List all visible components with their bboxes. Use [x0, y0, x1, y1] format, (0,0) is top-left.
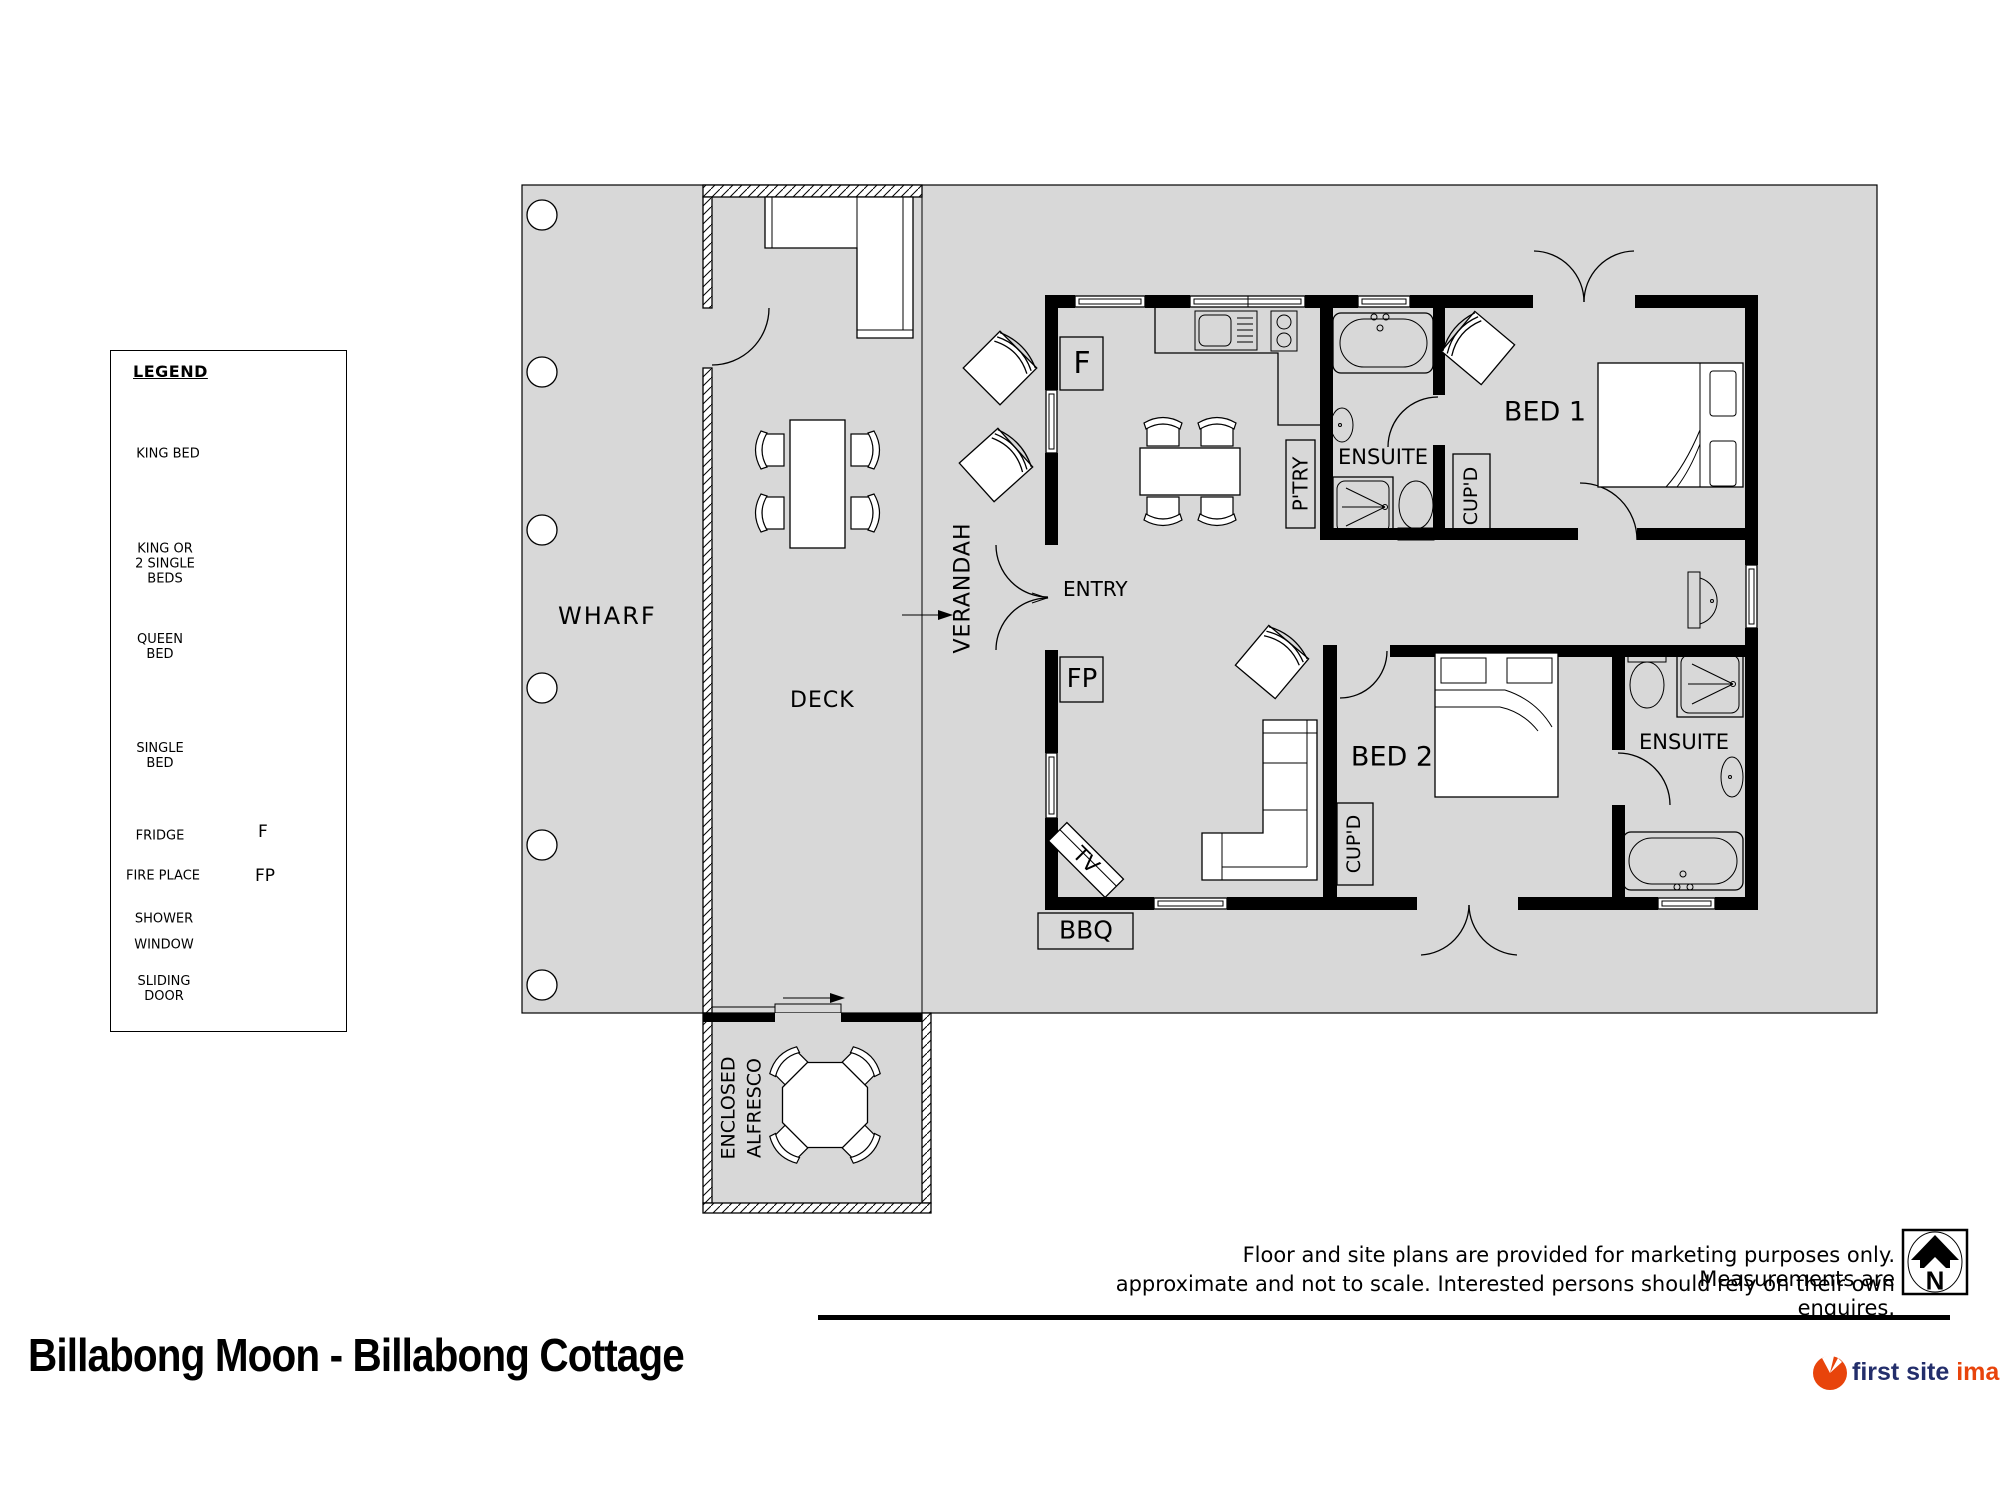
window [1046, 390, 1057, 453]
first-site-imaging-logo: first site imaging [1852, 1358, 2000, 1387]
legend-label-fridge: FRIDGE [136, 830, 185, 845]
fridge-label: F [1073, 347, 1090, 382]
window [1154, 898, 1227, 909]
disclaimer-line2: approximate and not to scale. Interested… [1100, 1272, 1895, 1320]
ensuite2-label: ENSUITE [1639, 730, 1729, 754]
bed2-label: BED 2 [1351, 741, 1433, 772]
cupboard1-label: CUP'D [1461, 467, 1483, 525]
enclosed-alfresco-label: ENCLOSED ALFRESCO [716, 1056, 767, 1159]
octagon-table [783, 1063, 868, 1148]
pantry-label: P'TRY [1290, 457, 1313, 512]
bed1-label: BED 1 [1504, 396, 1586, 427]
page-title: Billabong Moon - Billabong Cottage [28, 1328, 684, 1382]
cupboard2-label: CUP'D [1344, 815, 1366, 873]
logo-text-primary: first site [1852, 1358, 1949, 1386]
legend-label-shower: SHOWER [135, 913, 193, 928]
legend-fridge-letter: F [258, 823, 268, 843]
window [1190, 296, 1305, 307]
bbq-label: BBQ [1059, 917, 1113, 946]
legend-label-king-bed: KING BED [136, 448, 199, 463]
floor-plan-page: LEGEND KING BED KING OR 2 SINGLE BEDS QU… [0, 0, 2000, 1500]
fireplace-label: FP [1067, 665, 1098, 695]
wharf-label: WHARF [558, 603, 657, 631]
window [1658, 898, 1715, 909]
logo-text-secondary: imaging [1956, 1358, 2000, 1386]
window [1046, 753, 1057, 818]
legend-fireplace-letters: FP [255, 867, 275, 887]
deck-label: DECK [790, 688, 855, 713]
bed2-bed [1435, 653, 1558, 797]
legend-heading: LEGEND [133, 362, 208, 381]
bed1-bed [1598, 363, 1743, 487]
legend-label-fireplace: FIRE PLACE [126, 870, 200, 885]
first-site-imaging-logo-icon [1813, 1356, 1847, 1390]
window [1075, 296, 1145, 307]
legend-label-window: WINDOW [134, 939, 194, 954]
legend-label-queen-bed: QUEEN BED [137, 633, 183, 663]
window [1746, 565, 1757, 628]
legend-label-single-bed: SINGLE BED [136, 742, 183, 772]
north-letter: N [1926, 1266, 1945, 1297]
legend-label-sliding-door: SLIDING DOOR [138, 975, 191, 1005]
ensuite1-label: ENSUITE [1338, 445, 1428, 469]
entry-label: ENTRY [1063, 578, 1128, 601]
legend-label-king-or-2-single: KING OR 2 SINGLE BEDS [135, 543, 195, 588]
window [1358, 296, 1410, 307]
verandah-label: VERANDAH [950, 523, 975, 654]
